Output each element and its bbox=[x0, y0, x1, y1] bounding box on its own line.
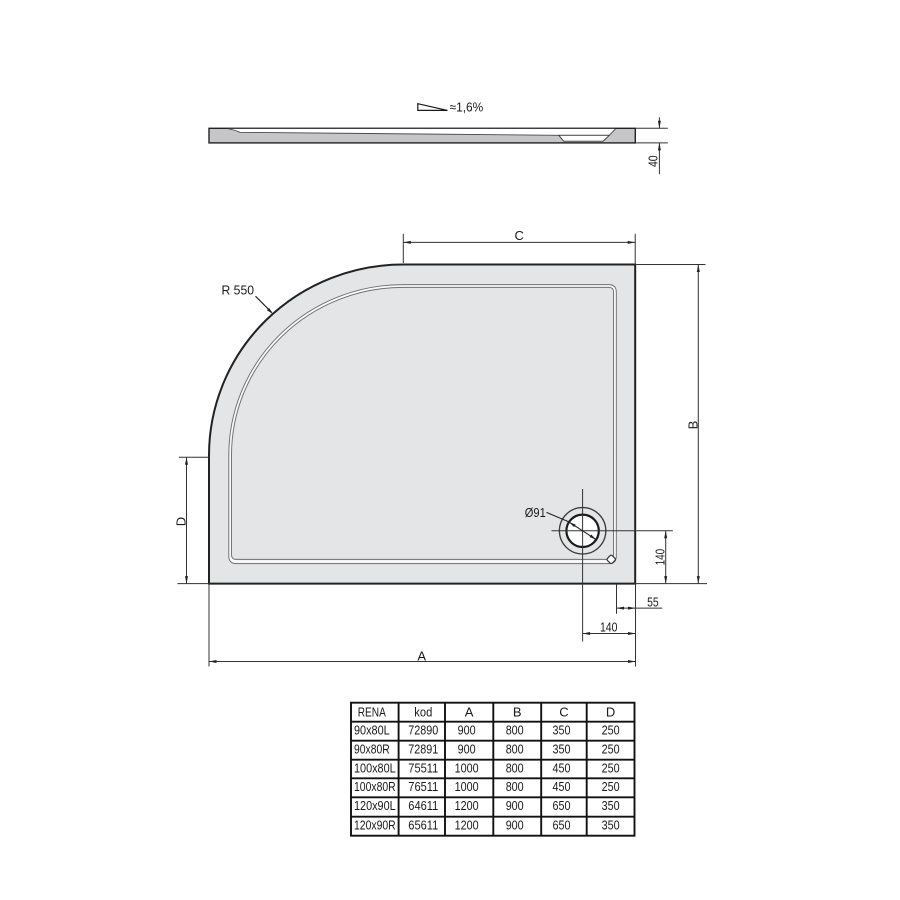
svg-text:140: 140 bbox=[600, 619, 618, 634]
svg-text:B: B bbox=[685, 421, 700, 430]
svg-text:100x80L: 100x80L bbox=[354, 761, 396, 776]
svg-text:D: D bbox=[173, 517, 188, 526]
svg-text:450: 450 bbox=[553, 779, 571, 794]
svg-text:1000: 1000 bbox=[455, 779, 479, 794]
svg-text:140: 140 bbox=[652, 549, 667, 566]
svg-text:B: B bbox=[513, 704, 522, 719]
svg-text:900: 900 bbox=[458, 742, 476, 757]
svg-text:Ø91: Ø91 bbox=[525, 505, 546, 520]
svg-text:120x90L: 120x90L bbox=[354, 798, 396, 813]
svg-text:R 550: R 550 bbox=[222, 282, 255, 297]
svg-text:C: C bbox=[515, 228, 524, 243]
svg-text:450: 450 bbox=[553, 761, 571, 776]
svg-text:900: 900 bbox=[506, 818, 524, 833]
svg-text:C: C bbox=[559, 704, 568, 719]
svg-text:800: 800 bbox=[506, 742, 524, 757]
svg-text:1200: 1200 bbox=[455, 818, 479, 833]
svg-text:350: 350 bbox=[602, 798, 620, 813]
svg-text:250: 250 bbox=[602, 779, 620, 794]
svg-text:76511: 76511 bbox=[408, 779, 438, 794]
svg-text:40: 40 bbox=[646, 155, 661, 167]
svg-text:90x80R: 90x80R bbox=[354, 742, 390, 757]
svg-text:64611: 64611 bbox=[408, 798, 438, 813]
svg-text:650: 650 bbox=[553, 798, 571, 813]
svg-text:350: 350 bbox=[553, 742, 571, 757]
svg-text:kod: kod bbox=[414, 704, 432, 719]
svg-text:A: A bbox=[417, 649, 426, 664]
svg-text:≈1,6%: ≈1,6% bbox=[450, 99, 484, 114]
svg-text:900: 900 bbox=[458, 723, 476, 738]
svg-text:55: 55 bbox=[647, 595, 659, 610]
svg-text:RENA: RENA bbox=[358, 704, 386, 719]
svg-text:350: 350 bbox=[553, 723, 571, 738]
svg-text:100x80R: 100x80R bbox=[354, 779, 396, 794]
svg-text:250: 250 bbox=[602, 742, 620, 757]
svg-text:75511: 75511 bbox=[408, 761, 438, 776]
svg-text:120x90R: 120x90R bbox=[354, 818, 396, 833]
svg-text:250: 250 bbox=[602, 723, 620, 738]
svg-text:65611: 65611 bbox=[408, 818, 438, 833]
svg-text:350: 350 bbox=[602, 818, 620, 833]
svg-text:90x80L: 90x80L bbox=[354, 723, 390, 738]
svg-text:800: 800 bbox=[506, 779, 524, 794]
svg-text:650: 650 bbox=[553, 818, 571, 833]
svg-text:1200: 1200 bbox=[455, 798, 479, 813]
svg-text:1000: 1000 bbox=[455, 761, 479, 776]
svg-text:A: A bbox=[465, 704, 474, 719]
svg-text:D: D bbox=[606, 704, 615, 719]
svg-text:72890: 72890 bbox=[408, 723, 438, 738]
svg-text:900: 900 bbox=[506, 798, 524, 813]
svg-text:72891: 72891 bbox=[408, 742, 438, 757]
svg-text:250: 250 bbox=[602, 761, 620, 776]
svg-text:800: 800 bbox=[506, 761, 524, 776]
svg-text:800: 800 bbox=[506, 723, 524, 738]
